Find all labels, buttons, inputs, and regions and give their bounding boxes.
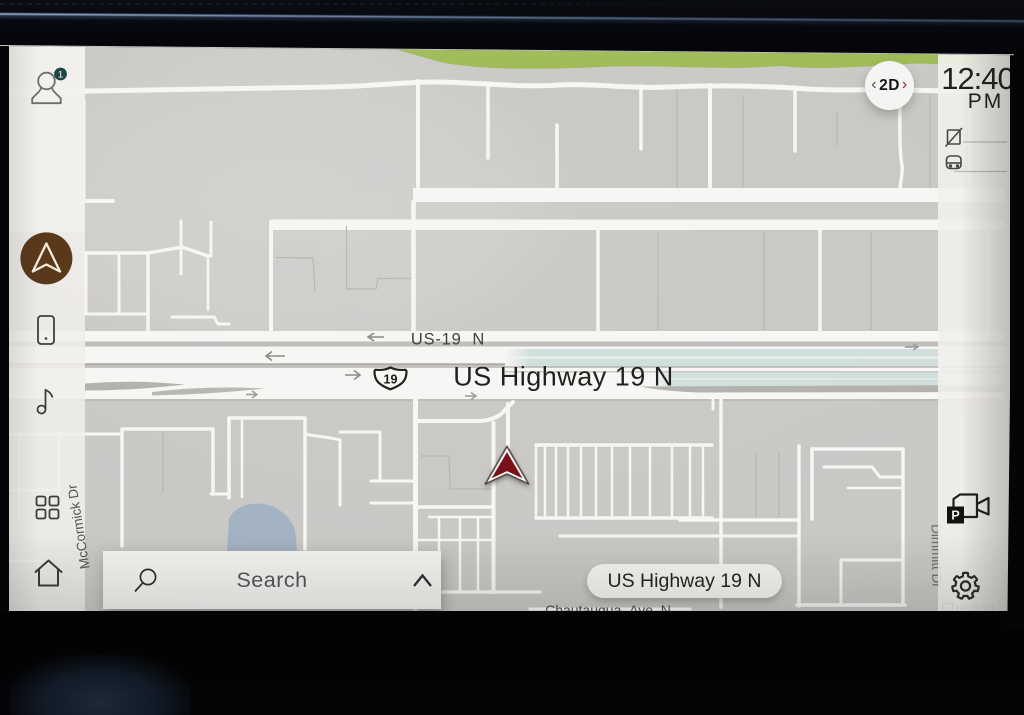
svg-text:US-19 N: US-19 N <box>411 331 485 349</box>
svg-text:1: 1 <box>58 70 63 81</box>
svg-text:P: P <box>951 509 959 523</box>
svg-text:US Highway 19 N: US Highway 19 N <box>453 362 674 392</box>
svg-text:Chautauqua Ave N: Chautauqua Ave N <box>545 602 671 611</box>
svg-text:19: 19 <box>384 373 398 387</box>
